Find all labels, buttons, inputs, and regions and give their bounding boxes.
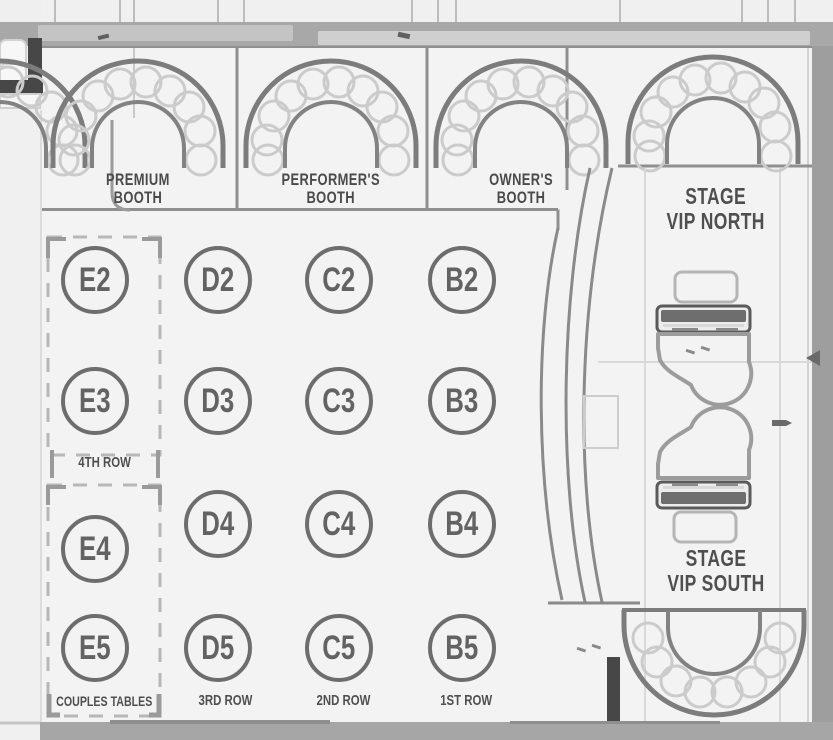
premium-booth-label-line1: PREMIUM <box>106 170 170 189</box>
table-e5[interactable]: E5 <box>61 614 129 682</box>
table-d3-label: D3 <box>201 382 234 421</box>
booth-inner-arch <box>0 102 46 168</box>
row-label-couples-tables: COUPLES TABLES <box>34 694 174 709</box>
table-c4-label: C4 <box>322 505 355 544</box>
table-d2-label: D2 <box>201 261 234 300</box>
table-b2[interactable]: B2 <box>428 246 496 314</box>
stage-vip-south-label: STAGE VIP SOUTH <box>626 546 806 595</box>
table-b3-label: B3 <box>445 382 478 421</box>
table-c2-label: C2 <box>322 261 355 300</box>
table-b2-label: B2 <box>445 261 478 300</box>
premium-booth-label: PREMIUM BOOTH <box>48 171 228 207</box>
table-d4[interactable]: D4 <box>184 490 252 558</box>
table-d2[interactable]: D2 <box>184 246 252 314</box>
table-e5-label: E5 <box>79 629 111 668</box>
table-c5-label: C5 <box>322 629 355 668</box>
vip-north-line2: VIP NORTH <box>667 208 765 234</box>
table-d3[interactable]: D3 <box>184 367 252 435</box>
table-c5[interactable]: C5 <box>305 614 373 682</box>
row-label-3rd-row: 3RD ROW <box>165 693 285 709</box>
table-c3[interactable]: C3 <box>305 367 373 435</box>
table-b5-label: B5 <box>445 629 478 668</box>
bottom-wall-band <box>0 720 833 740</box>
vip-south-line1: STAGE <box>686 545 747 571</box>
table-e2-label: E2 <box>79 261 111 300</box>
table-d5[interactable]: D5 <box>184 614 252 682</box>
table-d5-label: D5 <box>201 629 234 668</box>
vip-north-line1: STAGE <box>686 183 747 209</box>
stage-vip-north-label: STAGE VIP NORTH <box>626 184 806 233</box>
table-e4-label: E4 <box>79 530 111 569</box>
owners-booth-label-line1: OWNER'S <box>489 170 553 189</box>
table-b5[interactable]: B5 <box>428 614 496 682</box>
table-b3[interactable]: B3 <box>428 367 496 435</box>
table-c3-label: C3 <box>322 382 355 421</box>
table-b4[interactable]: B4 <box>428 490 496 558</box>
row-label-2nd-row: 2ND ROW <box>283 693 403 709</box>
row-label-1st-row: 1ST ROW <box>406 693 526 709</box>
performers-booth-label-line1: PERFORMER'S <box>282 170 380 189</box>
performers-booth-label-line2: BOOTH <box>307 188 356 207</box>
owners-booth-label: OWNER'S BOOTH <box>431 171 611 207</box>
table-e2[interactable]: E2 <box>61 246 129 314</box>
table-e3[interactable]: E3 <box>61 367 129 435</box>
table-e4[interactable]: E4 <box>61 515 129 583</box>
wall-post <box>607 657 620 727</box>
top-wall-band <box>0 0 833 46</box>
performers-booth-label: PERFORMER'S BOOTH <box>241 171 421 207</box>
vip-south-line2: VIP SOUTH <box>667 570 764 596</box>
seating-map: PREMIUM BOOTH PERFORMER'S BOOTH OWNER'S … <box>0 0 833 740</box>
table-b4-label: B4 <box>445 505 478 544</box>
premium-booth-label-line2: BOOTH <box>114 188 163 207</box>
table-e3-label: E3 <box>79 382 111 421</box>
table-c4[interactable]: C4 <box>305 490 373 558</box>
stage-area[interactable] <box>650 268 758 544</box>
owners-booth-label-line2: BOOTH <box>497 188 546 207</box>
table-d4-label: D4 <box>201 505 234 544</box>
row-label-4th-row: 4TH ROW <box>45 455 165 471</box>
wall-studs <box>55 0 795 22</box>
table-c2[interactable]: C2 <box>305 246 373 314</box>
